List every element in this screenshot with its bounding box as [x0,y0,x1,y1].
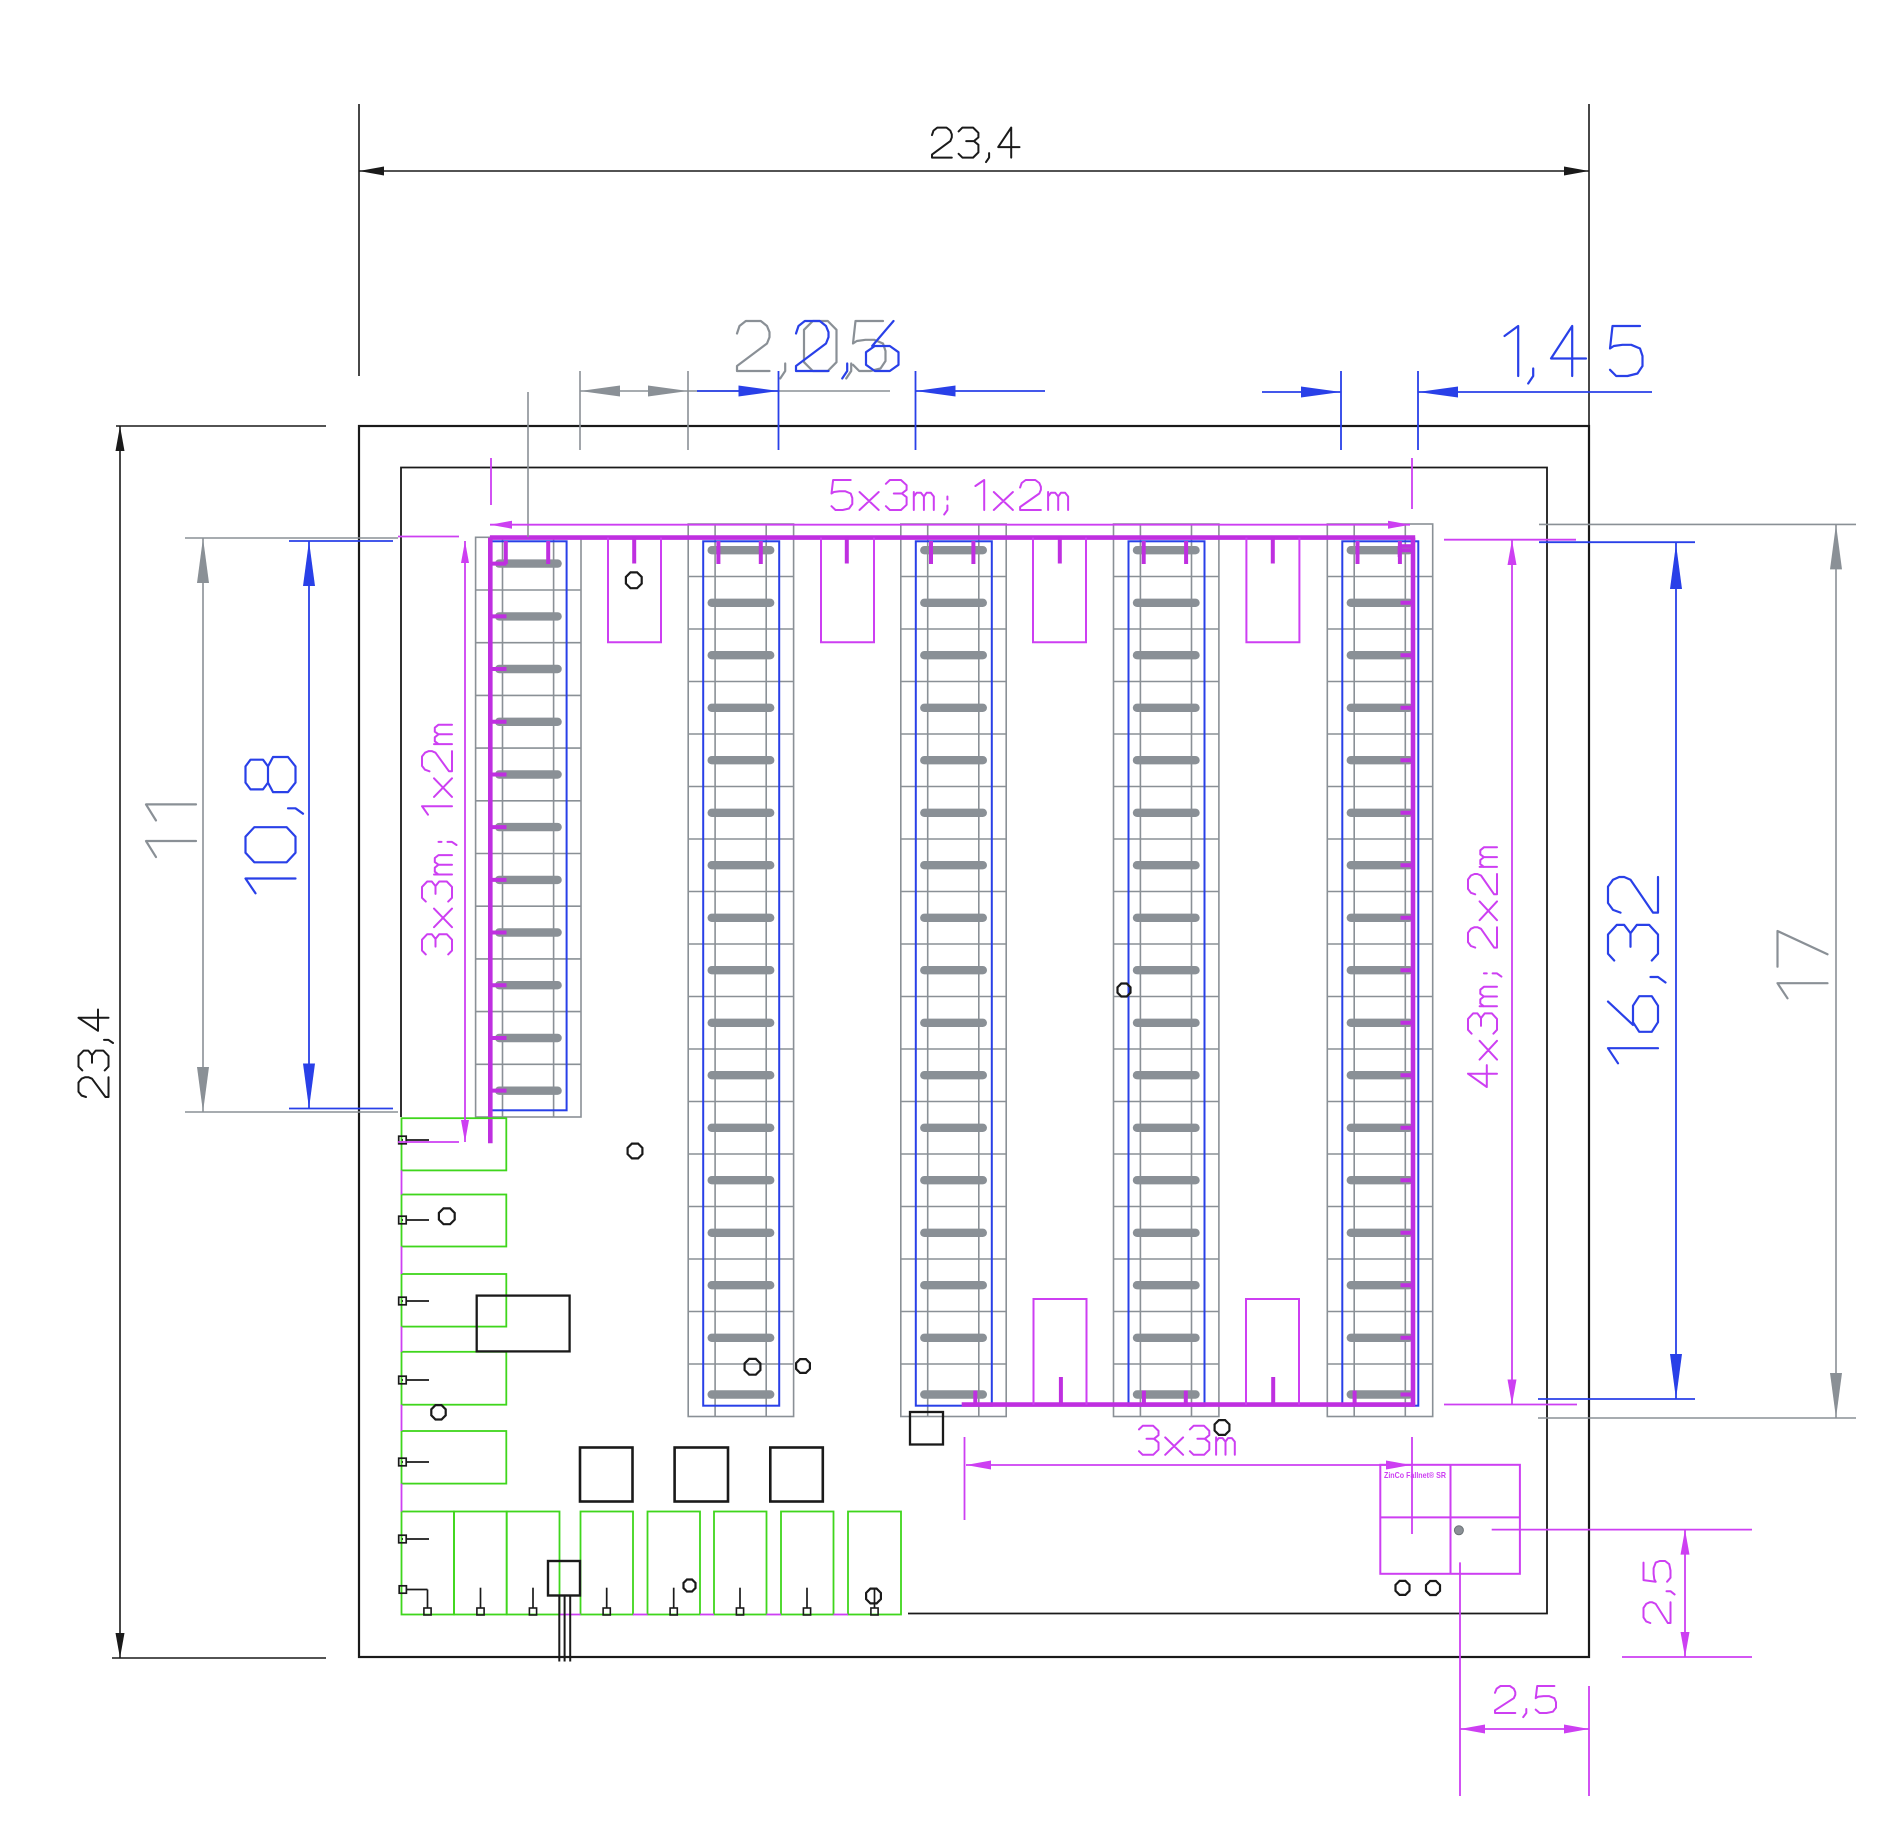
svg-text:ZinCo Fallnet® SR: ZinCo Fallnet® SR [1384,1471,1446,1480]
